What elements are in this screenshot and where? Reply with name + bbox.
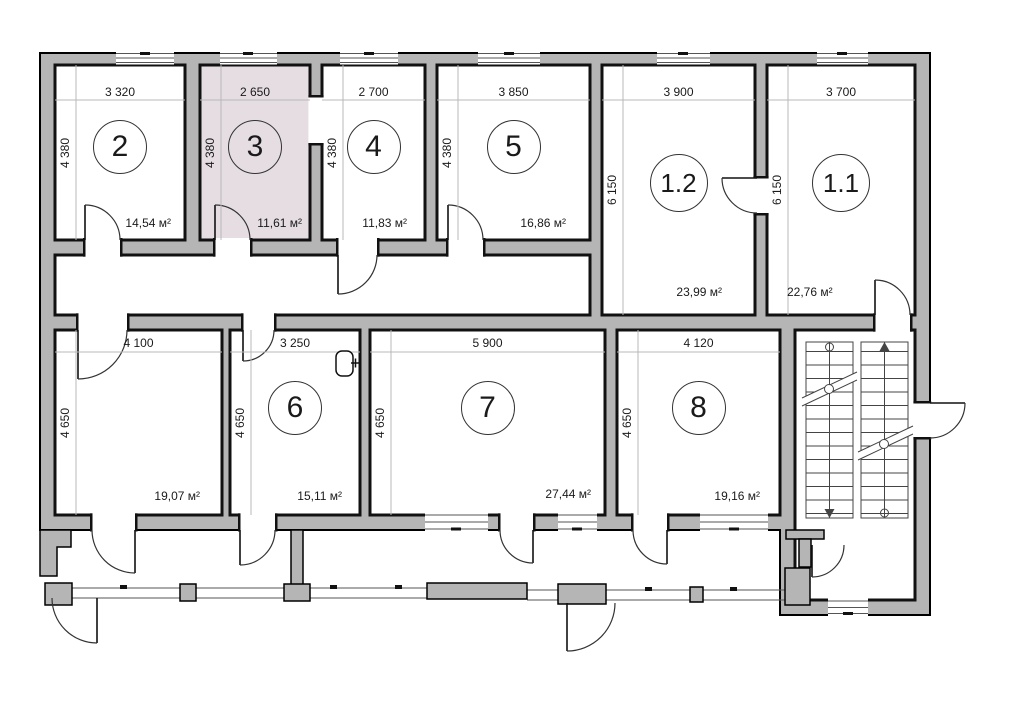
room-depth-dimension: 4 650 (58, 407, 72, 437)
room-depth-dimension: 4 380 (203, 137, 217, 167)
room-area-label: 15,11 м² (297, 489, 342, 503)
room-area-label: 14,54 м² (125, 216, 171, 230)
room-5[interactable]: 3 850 4 380 5 16,86 м² (437, 65, 590, 240)
room-1-1[interactable]: 3 700 6 150 1.1 22,76 м² (767, 65, 915, 315)
room-width-dimension: 3 850 (437, 85, 590, 99)
room-width-dimension: 2 650 (200, 85, 310, 99)
room-3[interactable]: 2 650 4 380 3 11,61 м² (200, 65, 310, 240)
room-depth-dimension: 6 150 (605, 175, 619, 205)
room-storeroom[interactable]: 4 100 4 650 19,07 м² (55, 330, 222, 515)
room-number-badge: 6 (268, 381, 322, 435)
room-width-dimension: 3 250 (230, 336, 360, 350)
room-4[interactable]: 2 700 4 380 4 11,83 м² (322, 65, 425, 240)
corridor-floor (55, 255, 590, 315)
room-number-badge: 2 (93, 120, 147, 174)
room-7[interactable]: 5 900 4 650 7 27,44 м² (370, 330, 605, 515)
room-8[interactable]: 4 120 4 650 8 19,16 м² (617, 330, 780, 515)
room-number-badge: 8 (672, 381, 726, 435)
room-width-dimension: 4 100 (55, 336, 222, 350)
room-number-badge: 1.1 (812, 154, 870, 212)
room-width-dimension: 5 900 (370, 336, 605, 350)
room-6[interactable]: 3 250 4 650 6 15,11 м² (230, 330, 360, 515)
room-width-dimension: 4 120 (617, 336, 780, 350)
room-depth-dimension: 4 380 (325, 137, 339, 167)
room-number-badge: 1.2 (650, 154, 708, 212)
room-area-label: 11,61 м² (257, 216, 302, 230)
room-area-label: 16,86 м² (520, 216, 566, 230)
room-area-label: 19,16 м² (714, 489, 760, 503)
floor-plan: 3 320 4 380 2 14,54 м² 2 650 4 380 3 11,… (0, 0, 1024, 724)
room-depth-dimension: 4 650 (233, 407, 247, 437)
room-number-badge: 3 (228, 120, 282, 174)
room-depth-dimension: 4 380 (440, 137, 454, 167)
room-1-2[interactable]: 3 900 6 150 1.2 23,99 м² (602, 65, 755, 315)
room-depth-dimension: 4 380 (58, 137, 72, 167)
porch-layer (45, 530, 844, 651)
room-area-label: 19,07 м² (154, 489, 200, 503)
room-depth-dimension: 4 650 (620, 407, 634, 437)
room-2[interactable]: 3 320 4 380 2 14,54 м² (55, 65, 185, 240)
room-area-label: 23,99 м² (676, 285, 722, 299)
room-area-label: 27,44 м² (545, 487, 591, 501)
room-width-dimension: 2 700 (322, 85, 425, 99)
room-width-dimension: 3 700 (767, 85, 915, 99)
room-width-dimension: 3 900 (602, 85, 755, 99)
room-number-badge: 5 (487, 120, 541, 174)
room-depth-dimension: 6 150 (770, 175, 784, 205)
room-width-dimension: 3 320 (55, 85, 185, 99)
room-depth-dimension: 4 650 (373, 407, 387, 437)
room-area-label: 22,76 м² (787, 285, 833, 299)
room-number-badge: 7 (461, 381, 515, 435)
room-number-badge: 4 (347, 120, 401, 174)
room-area-label: 11,83 м² (362, 216, 407, 230)
